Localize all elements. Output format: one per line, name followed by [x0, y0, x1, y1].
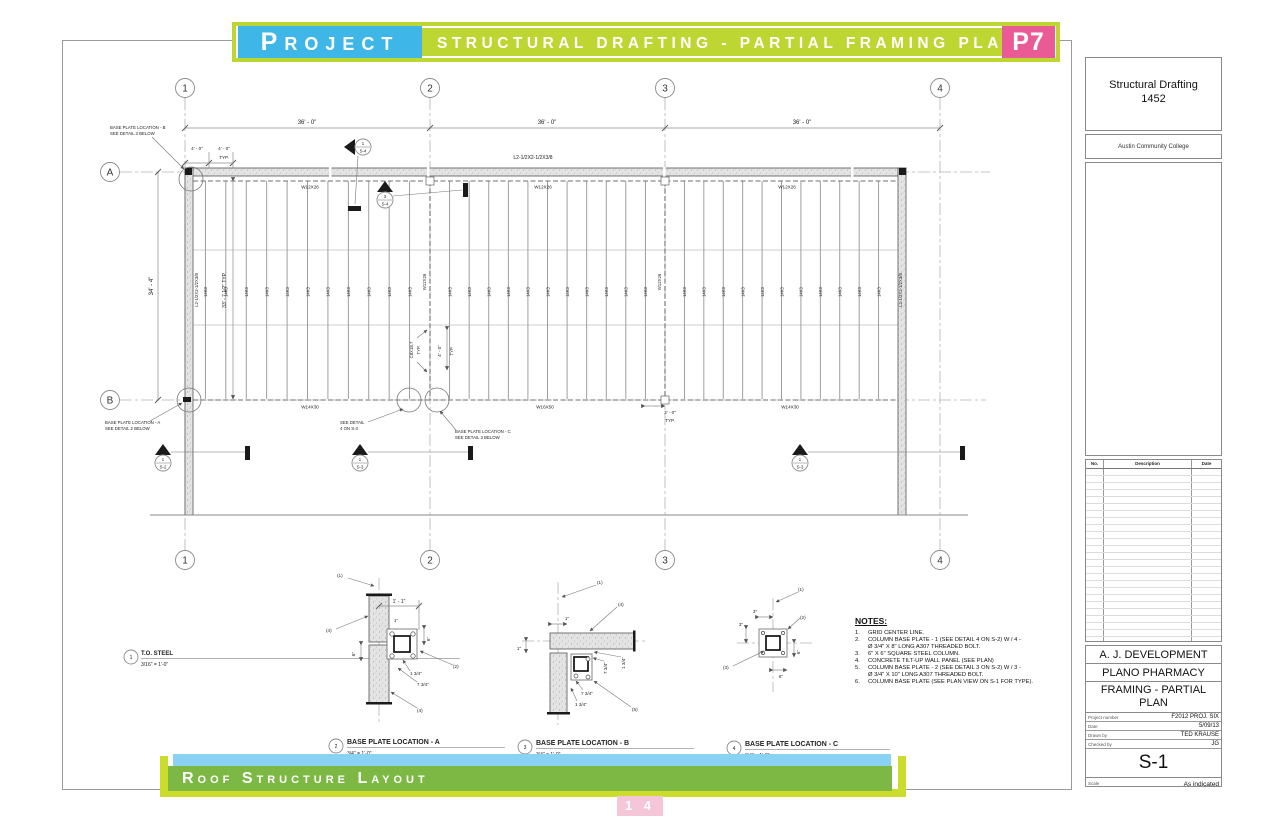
dim-4ft-2: 4' - 0" [218, 146, 230, 151]
det4-dim-six-b: 6" [779, 674, 784, 679]
title-block: Structural Drafting 1452 Austin Communit… [1085, 57, 1222, 787]
joist-label: 14K3 [407, 286, 412, 296]
channel-label: C8X18.7 [409, 341, 414, 358]
note-6: 6. COLUMN BASE PLATE (SEE PLAN VIEW ON S… [855, 679, 1035, 686]
det3-callout-1: (1) [597, 580, 603, 585]
joist-label: 14K3 [740, 286, 745, 296]
note-2: 2. COLUMN BASE PLATE - 1 (SEE DETAIL 4 O… [855, 637, 1035, 651]
joist-label: 14K3 [244, 286, 249, 296]
det3-dim-plate2-b: 1 3/4" [575, 702, 587, 707]
grid-bubbles: 1 2 3 4 1 2 3 4 A B [101, 79, 950, 570]
page-number-badge: 1 4 [617, 796, 663, 816]
grid-bubble-4: 4 [937, 84, 943, 95]
det4-callout-3: (3) [723, 665, 729, 670]
course-box: Structural Drafting 1452 [1085, 57, 1222, 131]
dim-3ft: 3' - 0" [664, 410, 676, 415]
joist-label: 14K3 [285, 286, 290, 296]
joist-label: 14K3 [779, 286, 784, 296]
scale-row: ScaleAs indicated [1086, 778, 1221, 788]
notes-title: NOTES: [855, 616, 1035, 626]
joist-label: 14K3 [367, 286, 372, 296]
det2-dim-edge: 1" [394, 618, 399, 623]
joist-label: 14K3 [346, 286, 351, 296]
beam-label-top-1: W12X26 [301, 185, 319, 190]
revision-row-empty [1086, 630, 1221, 637]
grid-bubble-3b: 3 [662, 556, 668, 567]
revision-row-empty [1086, 532, 1221, 539]
joist-label: 14K3 [545, 286, 550, 296]
beam-label-bot-3: W14X30 [781, 405, 799, 410]
layout-title: Roof Structure Layout [168, 766, 892, 791]
dim-height: 34' - 4" [149, 277, 155, 296]
corner-plate-mark [899, 168, 906, 175]
project-name: PLANO PHARMACY [1086, 664, 1221, 682]
joist-label: 14K3 [818, 286, 823, 296]
note-see-detail-line1: SEE DETAIL [340, 420, 365, 425]
det3-callout-5: (5) [632, 707, 638, 712]
sheet-number: S-1 [1086, 749, 1221, 778]
page-code-badge: P7 [1002, 26, 1055, 58]
note-bp-c-line1: BASE PLATE LOCATION - C [455, 429, 511, 434]
det3-dim-plate2-r: 1 3/4" [621, 657, 626, 669]
view-1-scale: 3/16" = 1'-0" [141, 662, 168, 668]
base-plate-mark [183, 397, 191, 402]
det3-dim-edge-top: 1" [565, 616, 570, 621]
joist-label: 14K3 [467, 286, 472, 296]
note-3: 3. 6" X 6" SQUARE STEEL COLUMN. [855, 651, 1035, 658]
section-1-s3b-sheet: S-3 [797, 465, 804, 470]
joist-label: 14K3 [203, 286, 208, 296]
corner-plate-mark [185, 168, 192, 175]
joist-label: 14K3 [682, 286, 687, 296]
grid-bubble-1b: 1 [182, 556, 188, 567]
grid-bubble-2b: 2 [427, 556, 433, 567]
detail-3-base-plate-b: 1" 1" 7 3/4" 1 3/4" 7 3/4" 1 3/4" (1) (4… [517, 580, 694, 758]
beam-label-bot-2: W16X50 [536, 405, 554, 410]
dim-4ft-vert-typ: TYP. [449, 347, 454, 356]
dim-joist-span: 33' - 7 1/2" TYP. [222, 272, 228, 308]
stamp-box [1085, 162, 1222, 456]
member-labels: L2-1/2X2-1/2X3/8 W12X26 W12X26 W12X26 W1… [194, 155, 903, 410]
revision-row-empty [1086, 490, 1221, 497]
layout-banner: Roof Structure Layout [160, 750, 906, 798]
joist-label: 14K3 [526, 286, 531, 296]
header-banner: Project STRUCTURAL DRAFTING - PARTIAL FR… [232, 22, 1060, 62]
revision-row-empty [1086, 574, 1221, 581]
joist-label: 14K3 [326, 286, 331, 296]
revision-row-empty [1086, 637, 1221, 642]
det3-dim-plate1-r: 7 3/4" [603, 662, 608, 674]
det2-callout-2: (2) [453, 664, 459, 669]
revision-row-empty [1086, 525, 1221, 532]
revision-row-empty [1086, 623, 1221, 630]
grid-bubble-3: 3 [662, 84, 668, 95]
revision-row-empty [1086, 609, 1221, 616]
section-3-s4-sheet: S-4 [382, 202, 389, 207]
grid-bubble-b: B [107, 396, 114, 407]
det4-callout-2: (2) [800, 615, 806, 620]
revision-row-empty [1086, 518, 1221, 525]
revision-table: No. Description Date [1085, 459, 1222, 642]
revision-row-empty [1086, 567, 1221, 574]
wall-angle-label-left: L2-1/2X2-1/2X3/8 [194, 273, 199, 307]
joist-label: 14K3 [702, 286, 707, 296]
dim-bay-1: 36' - 0" [298, 120, 317, 126]
joist-label: 14K3 [799, 286, 804, 296]
note-see-detail-line2: 4 ON S-3 [340, 426, 359, 431]
banner-title: STRUCTURAL DRAFTING - PARTIAL FRAMING PL… [437, 26, 988, 58]
course-number: 1452 [1086, 92, 1221, 106]
det2-dim-width: 1' - 1" [393, 599, 406, 605]
revision-table-header: No. Description Date [1086, 460, 1221, 469]
note-bp-a-line1: BASE PLATE LOCATION - A [105, 420, 160, 425]
det4-dim-three-t: 3" [753, 609, 758, 614]
note-bp-b-line1: BASE PLATE LOCATION - B [110, 125, 166, 130]
beam-label-top-2: W12X26 [534, 185, 552, 190]
det3-dim-edge-left: 1" [517, 646, 522, 651]
det2-callout-4a: (4) [326, 628, 332, 633]
joist-label: 14K3 [506, 286, 511, 296]
joist-label: 14K3 [760, 286, 765, 296]
joist-label: 14K3 [584, 286, 589, 296]
column-beam-label-3: W12X26 [657, 273, 662, 290]
joist-label: 14K3 [447, 286, 452, 296]
view-1-name: T.O. STEEL [141, 651, 173, 657]
joist-label: 14K3 [305, 286, 310, 296]
lintel-angle-label: L2-1/2X2-1/2X3/8 [513, 155, 552, 161]
joist-label: 14K3 [857, 286, 862, 296]
joist-label: 14K3 [565, 286, 570, 296]
joist-label: 14K3 [387, 286, 392, 296]
det2-dim-six-l: 6" [351, 652, 356, 657]
joist-label: 14K3 [487, 286, 492, 296]
section-1-s4-sheet: S-4 [360, 149, 367, 154]
det2-dim-six-r: 6" [426, 637, 431, 642]
revision-row-empty [1086, 511, 1221, 518]
joist-label: 14K3 [643, 286, 648, 296]
field-drawn-by: Drawn byTED KRAUSE [1086, 731, 1221, 740]
revision-row-empty [1086, 581, 1221, 588]
project-label: Project [238, 26, 422, 58]
det4-dim-three-l: 3" [739, 622, 744, 627]
det4-dim-six-r: 6" [796, 650, 801, 655]
det2-title: BASE PLATE LOCATION - A [347, 739, 440, 746]
beam-label-top-3: W12X26 [778, 185, 796, 190]
section-1-s3-sheet: S-3 [357, 465, 364, 470]
revision-row-empty [1086, 595, 1221, 602]
dim-bay-2: 36' - 0" [538, 120, 557, 126]
joist-label: 14K3 [721, 286, 726, 296]
framing-plan-drawing: 14K314K314K314K314K314K314K314K314K314K3… [0, 0, 1275, 825]
joist-spacing-dim: 3' - 0" TYP. [645, 406, 676, 423]
title-block-info: A. J. DEVELOPMENT PLANO PHARMACY FRAMING… [1085, 645, 1222, 787]
column-beam-label-2: W12X26 [422, 273, 427, 290]
det2-callout-1: (1) [337, 573, 343, 578]
sheet-title: FRAMING - PARTIAL PLAN [1086, 682, 1221, 713]
rev-col-no: No. [1086, 460, 1104, 468]
company-name: A. J. DEVELOPMENT [1086, 646, 1221, 664]
dim-4ft-vert: 4' - 0" [437, 345, 442, 357]
grid-bubble-4b: 4 [937, 556, 943, 567]
grid-bubble-a: A [107, 168, 114, 179]
dim-3ft-typ: TYP. [665, 418, 675, 423]
det4-title: BASE PLATE LOCATION - C [745, 741, 838, 748]
course-name: Structural Drafting [1086, 78, 1221, 92]
joist-label: 14K3 [264, 286, 269, 296]
joist-label: 14K3 [838, 286, 843, 296]
note-bp-a-line2: SEE DETAIL 2 BELOW [105, 426, 151, 431]
revision-row-empty [1086, 483, 1221, 490]
revision-row-empty [1086, 469, 1221, 476]
revision-row-empty [1086, 553, 1221, 560]
note-4: 4. CONCRETE TILT-UP WALL PANEL (SEE PLAN… [855, 658, 1035, 665]
revision-row-empty [1086, 546, 1221, 553]
revision-row-empty [1086, 539, 1221, 546]
note-5: 5. COLUMN BASE PLATE - 2 (SEE DETAIL 3 O… [855, 665, 1035, 679]
revision-row-empty [1086, 602, 1221, 609]
rev-col-date: Date [1192, 460, 1221, 468]
grid-bubble-1: 1 [182, 84, 188, 95]
channel-typ: TYP. [416, 346, 421, 355]
revision-table-body [1086, 469, 1221, 642]
note-1: 1. GRID CENTER LINE. [855, 630, 1035, 637]
dim-4ft-1: 4' - 0" [191, 146, 203, 151]
section-markers: 1 S-4 3 S-4 1 S-2 1 S-3 1 S-3 [155, 139, 965, 471]
grid-bubble-2: 2 [427, 84, 433, 95]
beam-label-bot-1: W14X30 [301, 405, 319, 410]
revision-row-empty [1086, 616, 1221, 623]
joist-label: 14K3 [604, 286, 609, 296]
note-bp-c-line2: SEE DETAIL 3 BELOW [455, 435, 501, 440]
det3-title: BASE PLATE LOCATION - B [536, 740, 629, 747]
wall-angle-label-right: L2-1/2X2-1/2X3/8 [898, 273, 903, 307]
bay-dimensions: 36' - 0" 36' - 0" 36' - 0" [182, 120, 943, 131]
det4-callout-1: (1) [798, 587, 804, 592]
view-1-num: 1 [130, 655, 133, 661]
revision-row-empty [1086, 497, 1221, 504]
rev-col-description: Description [1104, 460, 1192, 468]
revision-row-empty [1086, 588, 1221, 595]
dim-typ: TYP. [219, 155, 229, 160]
det2-dim-off2: 7 3/4" [417, 682, 429, 687]
field-project-number: Project numberF2012 PROJ. SIX [1086, 713, 1221, 722]
revision-row-empty [1086, 504, 1221, 511]
section-1-s2-sheet: S-2 [160, 465, 167, 470]
detail-2-base-plate-a: 1' - 1" 1" 6" 6" 1 3/4" 7 3/4" (1) (4) (… [326, 573, 505, 757]
notes-panel: NOTES: 1. GRID CENTER LINE. 2. COLUMN BA… [855, 616, 1035, 686]
joist-label: 14K3 [876, 286, 881, 296]
field-checked-by: Checked byJG [1086, 740, 1221, 749]
revision-row-empty [1086, 560, 1221, 567]
channel-dimensions: C8X18.7 TYP. 4' - 0" TYP. [409, 330, 454, 372]
top-left-dimensions: 4' - 0" 4' - 0" TYP. [182, 146, 236, 168]
note-bp-b-line2: SEE DETAIL 3 BELOW [110, 131, 156, 136]
field-date: Date5/09/13 [1086, 722, 1221, 731]
dim-bay-3: 36' - 0" [793, 120, 812, 126]
det3-dim-plate1-b: 7 3/4" [581, 691, 593, 696]
det2-callout-4b: (4) [417, 708, 423, 713]
banner-accent-right [898, 756, 906, 797]
joist-field: 14K314K314K314K314K314K314K314K314K314K3… [203, 181, 881, 399]
det3-callout-4: (4) [618, 602, 624, 607]
joist-label: 14K3 [624, 286, 629, 296]
det2-dim-off1: 1 3/4" [410, 671, 422, 676]
revision-row-empty [1086, 476, 1221, 483]
school-name: Austin Community College [1085, 134, 1222, 159]
